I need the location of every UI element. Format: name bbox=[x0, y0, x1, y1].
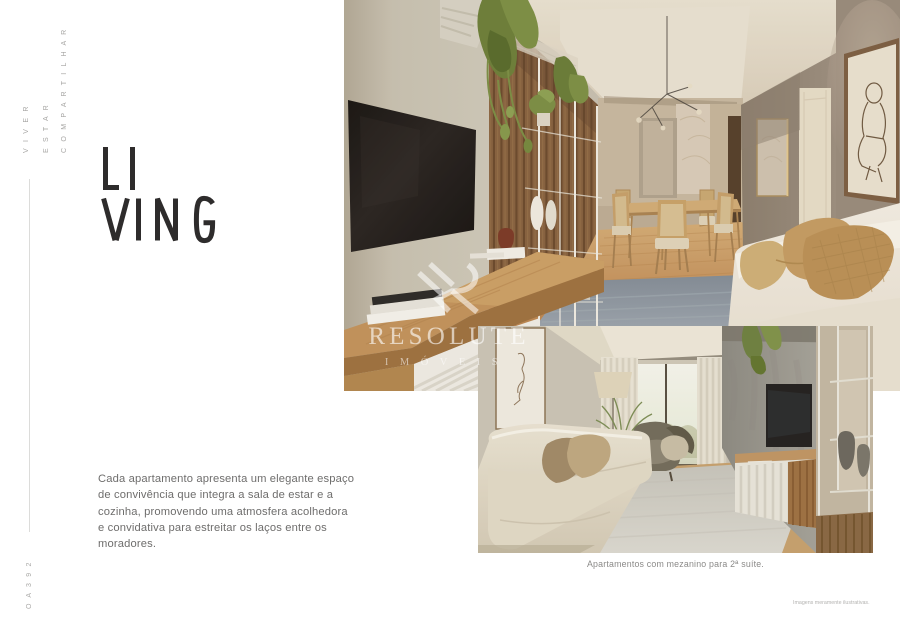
svg-text:IMÓVEIS: IMÓVEIS bbox=[385, 356, 509, 368]
svg-text:RESOLUTE: RESOLUTE bbox=[368, 323, 529, 350]
